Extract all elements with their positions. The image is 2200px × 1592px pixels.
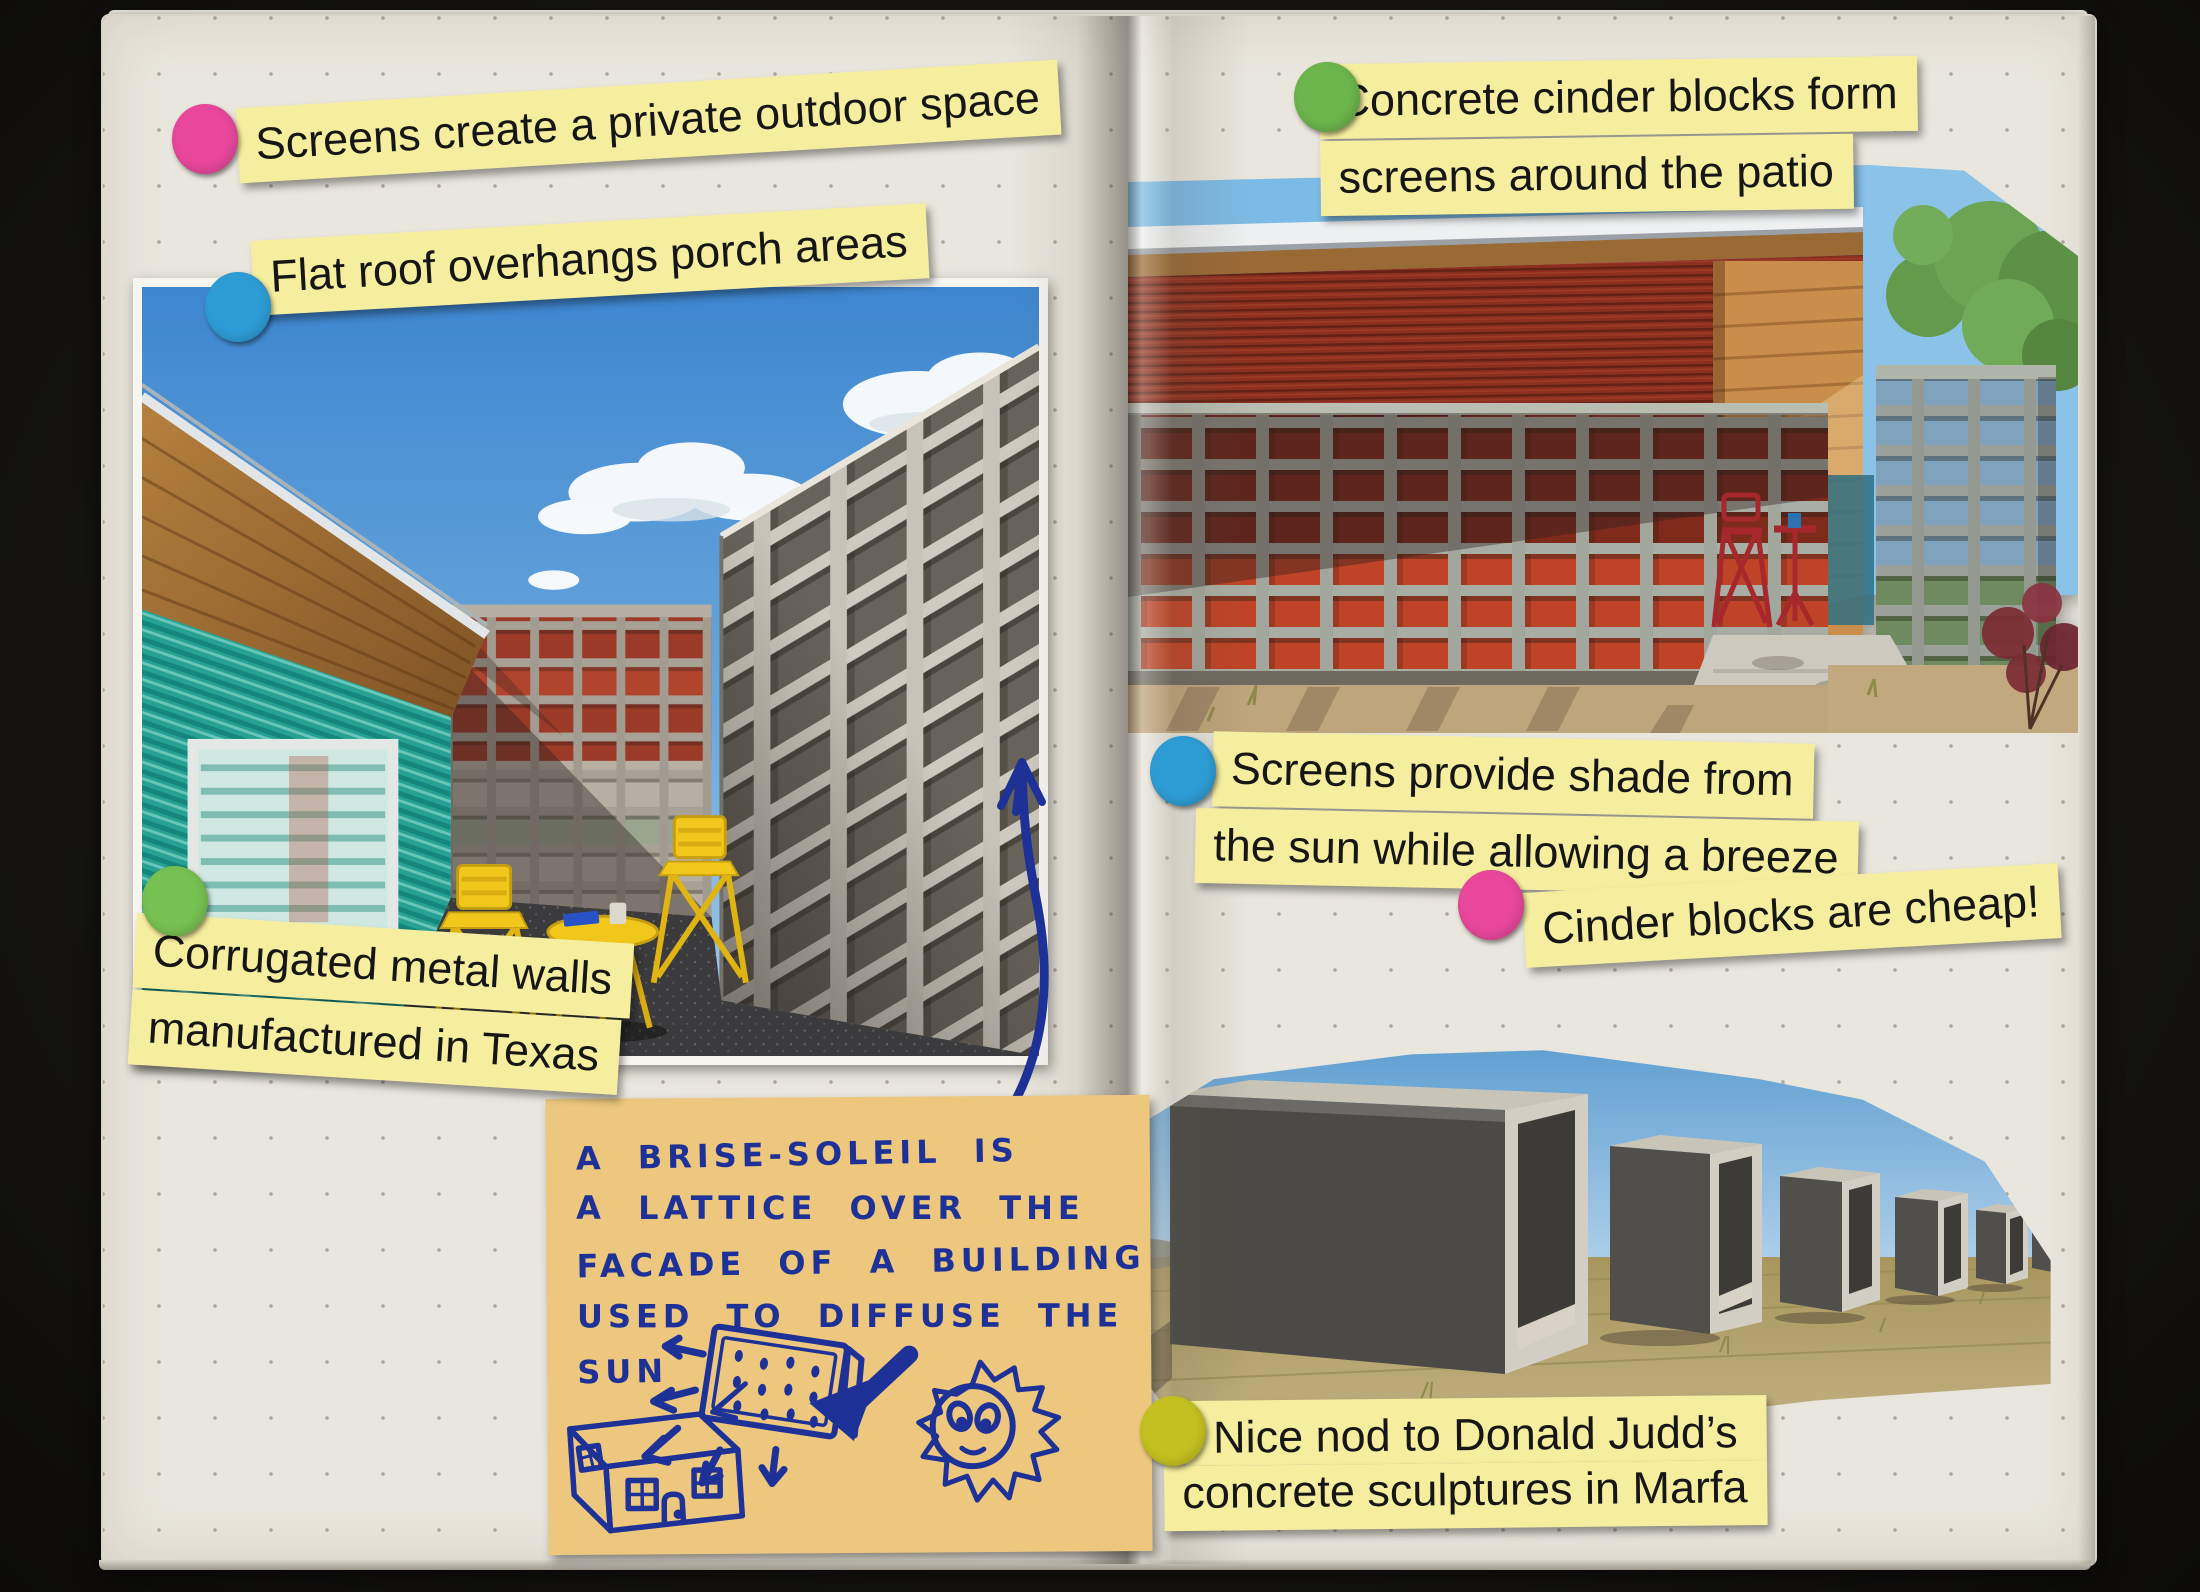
brise-soleil-doodle [545,1095,1152,1555]
judd-box-1 [1170,1080,1588,1374]
cup-on-table [610,903,627,924]
blue-cup [1788,513,1801,528]
sun-icon [918,1362,1059,1501]
patio-photo [1128,165,2078,733]
note-text: Screens provide shade from [1212,731,1814,819]
note-text: concrete sculptures in Marfa [1164,1460,1768,1531]
judd-box-3 [1780,1167,1880,1312]
fence [1828,475,1874,625]
page-stack-bottom-edge [99,1560,2091,1570]
brise-soleil-note: A BRISE-SOLEIL IS A LATTICE OVER THE FAC… [545,1095,1152,1555]
note-corrugated: Corrugated metal walls manufactured in T… [128,913,635,1096]
note-text: screens around the patio [1320,134,1854,216]
note-judd: Nice nod to Donald Judd’s concrete sculp… [1185,1395,1768,1531]
note-cinder-form: Concrete cinder blocks form screens arou… [1319,56,1919,216]
olive-dot-judd [1140,1396,1206,1466]
note-text: Concrete cinder blocks form [1319,56,1918,139]
judd-box-4 [1895,1189,1968,1296]
green-dot-cinder [1294,62,1360,132]
house-doodle [570,1414,743,1531]
judd-box-5 [1976,1204,2028,1284]
pink-dot-screens [172,104,238,174]
blue-dot-flat-roof [205,272,271,342]
blue-dot-shade [1150,736,1216,806]
scrapbook-spread: A BRISE-SOLEIL IS A LATTICE OVER THE FAC… [0,0,2200,1592]
louver-window [193,744,393,934]
green-dot-corrugated [142,866,208,936]
note-shade: Screens provide shade from the sun while… [1210,731,1860,897]
lattice-panel [701,1325,863,1438]
note-text: Nice nod to Donald Judd’s [1185,1395,1767,1466]
judd-box-2 [1610,1135,1762,1334]
pink-dot-cheap [1458,870,1524,940]
